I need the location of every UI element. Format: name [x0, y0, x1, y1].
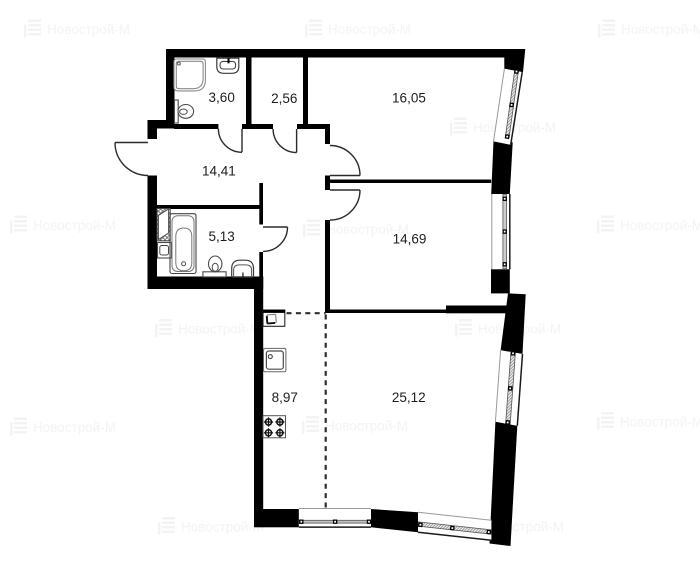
svg-text:25,12: 25,12 — [392, 390, 426, 405]
svg-text:14,69: 14,69 — [393, 232, 427, 247]
svg-text:3,60: 3,60 — [209, 90, 235, 105]
svg-text:14,41: 14,41 — [202, 164, 236, 179]
svg-text:8,97: 8,97 — [272, 390, 298, 405]
svg-text:5,13: 5,13 — [208, 229, 234, 244]
svg-text:2,56: 2,56 — [271, 91, 297, 106]
svg-text:16,05: 16,05 — [392, 90, 426, 105]
